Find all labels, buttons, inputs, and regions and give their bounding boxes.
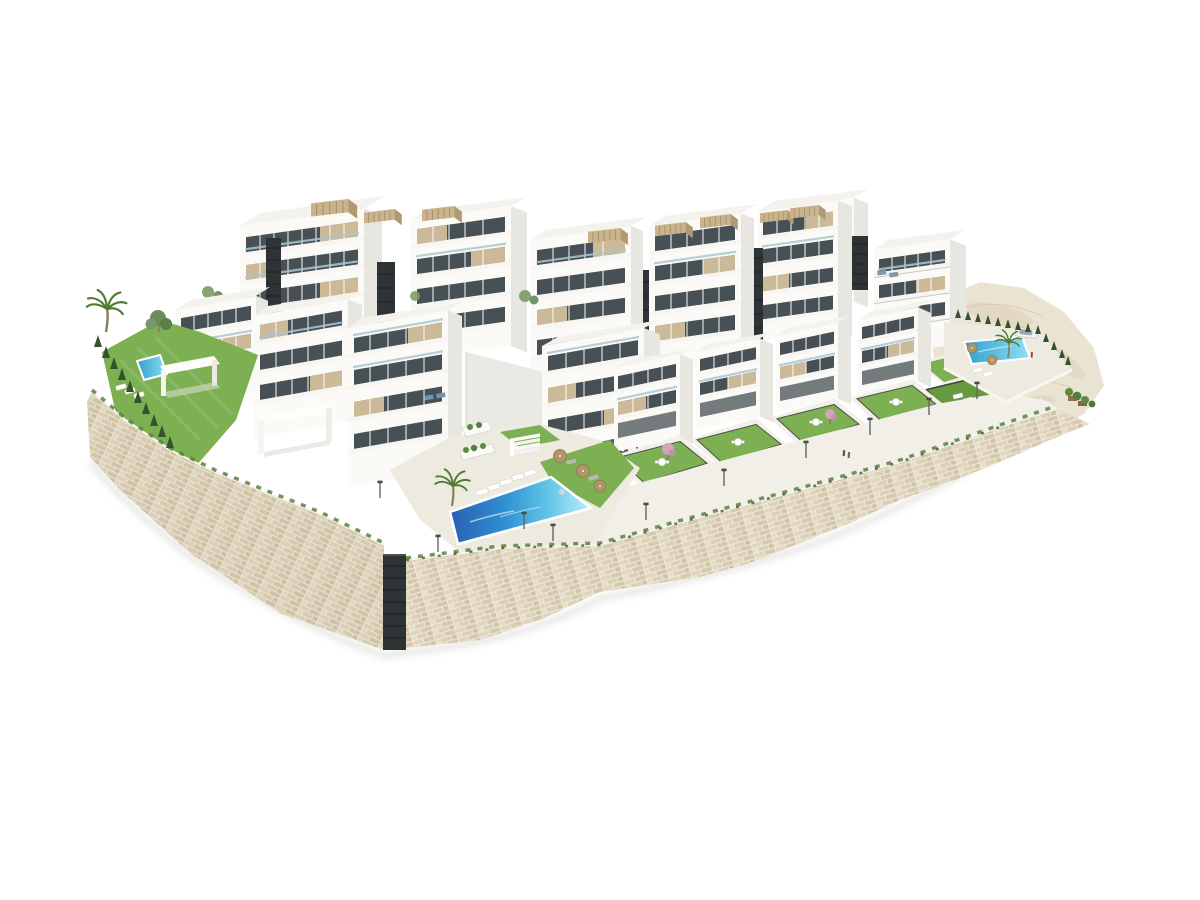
stair-core-tip — [383, 554, 406, 650]
townhouse-4 — [854, 300, 939, 424]
townhouse-2 — [694, 332, 784, 466]
person — [1031, 352, 1033, 358]
render-canvas — [0, 0, 1200, 900]
palm-tree — [87, 290, 127, 332]
broadleaf-tree — [146, 310, 173, 332]
mid-building-2 — [254, 291, 362, 457]
townhouse-3 — [774, 316, 862, 445]
stair-core — [851, 236, 868, 290]
architectural-render — [0, 0, 1200, 900]
